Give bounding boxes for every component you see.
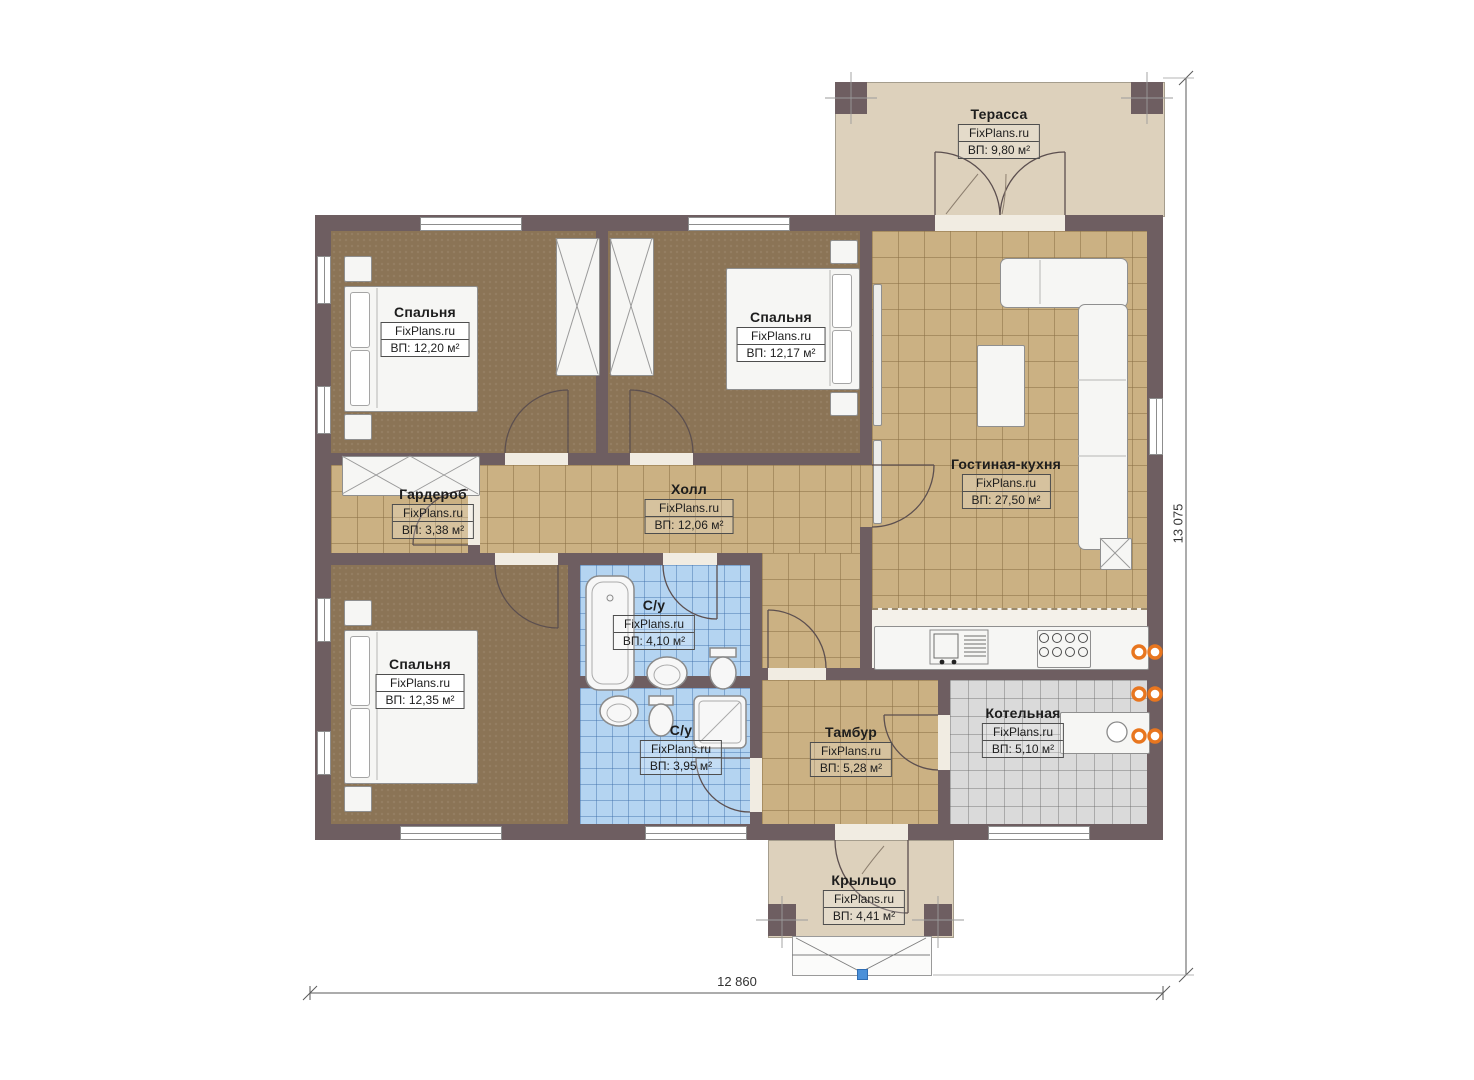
sofa-right bbox=[1078, 304, 1128, 550]
room-area: ВП: 9,80 м² bbox=[959, 142, 1039, 158]
porch-column-right bbox=[924, 904, 952, 936]
room-name: Котельная bbox=[982, 705, 1064, 721]
window-bedroom3-left-a bbox=[317, 598, 331, 642]
nightstand bbox=[830, 240, 858, 264]
terrace-column-right bbox=[1131, 82, 1163, 114]
label-bedroom3: Спальня FixPlans.ru ВП: 12,35 м² bbox=[376, 656, 465, 709]
door-opening-bathroom2 bbox=[750, 758, 762, 812]
label-terrace: Терасса FixPlans.ru ВП: 9,80 м² bbox=[958, 106, 1040, 159]
brand-watermark: FixPlans.ru bbox=[646, 500, 733, 517]
closet-bedroom1 bbox=[556, 238, 600, 376]
window-living-right bbox=[1149, 398, 1163, 455]
room-name: Спальня bbox=[381, 304, 470, 320]
tv-unit bbox=[873, 284, 882, 426]
coffee-table bbox=[977, 345, 1025, 427]
room-info-box: FixPlans.ru ВП: 5,10 м² bbox=[982, 723, 1064, 758]
pillow bbox=[832, 330, 852, 384]
window-boiler-bottom bbox=[988, 826, 1090, 840]
terrace-column-left bbox=[835, 82, 867, 114]
boiler-counter bbox=[1060, 712, 1150, 754]
wall-bedroom3-bath bbox=[568, 565, 580, 824]
window-bedroom1-left-a bbox=[317, 256, 331, 304]
room-area: ВП: 3,38 м² bbox=[393, 522, 473, 538]
room-name: Тамбур bbox=[810, 724, 892, 740]
wall-bath-divider bbox=[580, 676, 750, 688]
room-area: ВП: 12,06 м² bbox=[646, 517, 733, 533]
room-info-box: FixPlans.ru ВП: 12,35 м² bbox=[376, 674, 465, 709]
brand-watermark: FixPlans.ru bbox=[614, 616, 694, 633]
window-bedroom3-bottom bbox=[400, 826, 502, 840]
hall-living-gap-floor bbox=[860, 465, 872, 527]
entry-marker bbox=[857, 969, 868, 980]
porch-column-left bbox=[768, 904, 796, 936]
dimension-width: 12 860 bbox=[699, 974, 775, 989]
room-name: Гардероб bbox=[392, 486, 474, 502]
door-opening-bathroom1 bbox=[663, 553, 717, 565]
brand-watermark: FixPlans.ru bbox=[811, 743, 891, 760]
nightstand bbox=[344, 600, 372, 626]
room-area: ВП: 5,10 м² bbox=[983, 741, 1063, 757]
window-bathroom2-bottom bbox=[645, 826, 747, 840]
sofa-top bbox=[1000, 258, 1128, 308]
room-area: ВП: 12,20 м² bbox=[382, 340, 469, 356]
label-bathroom1: С/у FixPlans.ru ВП: 4,10 м² bbox=[613, 597, 695, 650]
room-info-box: FixPlans.ru ВП: 4,10 м² bbox=[613, 615, 695, 650]
door-opening-entrance bbox=[835, 824, 908, 840]
label-wardrobe: Гардероб FixPlans.ru ВП: 3,38 м² bbox=[392, 486, 474, 539]
pillow bbox=[350, 708, 370, 778]
window-bedroom1-top bbox=[420, 217, 522, 231]
brand-watermark: FixPlans.ru bbox=[377, 675, 464, 692]
brand-watermark: FixPlans.ru bbox=[824, 891, 904, 908]
stove bbox=[1037, 630, 1091, 668]
door-opening-bedroom1 bbox=[505, 453, 568, 465]
room-name: Гостиная-кухня bbox=[951, 456, 1061, 472]
room-info-box: FixPlans.ru ВП: 12,06 м² bbox=[645, 499, 734, 534]
label-bedroom2: Спальня FixPlans.ru ВП: 12,17 м² bbox=[737, 309, 826, 362]
door-opening-boiler bbox=[938, 715, 950, 770]
fridge-unit bbox=[1100, 538, 1132, 570]
room-area: ВП: 4,10 м² bbox=[614, 633, 694, 649]
pillow bbox=[350, 636, 370, 706]
room-area: ВП: 4,41 м² bbox=[824, 908, 904, 924]
wall-living-divider-lower bbox=[860, 527, 872, 680]
nightstand bbox=[344, 256, 372, 282]
room-name: С/у bbox=[640, 722, 722, 738]
room-info-box: FixPlans.ru ВП: 27,50 м² bbox=[962, 474, 1051, 509]
label-living-kitchen: Гостиная-кухня FixPlans.ru ВП: 27,50 м² bbox=[951, 456, 1061, 509]
console-unit bbox=[873, 440, 882, 524]
room-info-box: FixPlans.ru ВП: 5,28 м² bbox=[810, 742, 892, 777]
door-opening-bedroom2 bbox=[630, 453, 693, 465]
room-area: ВП: 27,50 м² bbox=[963, 492, 1050, 508]
pillow bbox=[832, 274, 852, 328]
room-area: ВП: 5,28 м² bbox=[811, 760, 891, 776]
room-name: Терасса bbox=[958, 106, 1040, 122]
window-bedroom2-top bbox=[688, 217, 790, 231]
label-hall: Холл FixPlans.ru ВП: 12,06 м² bbox=[645, 481, 734, 534]
door-opening-bedroom3 bbox=[495, 553, 558, 565]
pillow bbox=[350, 292, 370, 348]
window-bedroom3-left-b bbox=[317, 731, 331, 775]
door-opening-vestibule bbox=[768, 668, 826, 680]
brand-watermark: FixPlans.ru bbox=[963, 475, 1050, 492]
room-area: ВП: 12,35 м² bbox=[377, 692, 464, 708]
room-info-box: FixPlans.ru ВП: 4,41 м² bbox=[823, 890, 905, 925]
room-area: ВП: 3,95 м² bbox=[641, 758, 721, 774]
label-boiler: Котельная FixPlans.ru ВП: 5,10 м² bbox=[982, 705, 1064, 758]
brand-watermark: FixPlans.ru bbox=[738, 328, 825, 345]
brand-watermark: FixPlans.ru bbox=[959, 125, 1039, 142]
room-name: Крыльцо bbox=[823, 872, 905, 888]
room-name: Холл bbox=[645, 481, 734, 497]
room-name: Спальня bbox=[737, 309, 826, 325]
pillow bbox=[350, 350, 370, 406]
brand-watermark: FixPlans.ru bbox=[393, 505, 473, 522]
room-info-box: FixPlans.ru ВП: 12,17 м² bbox=[737, 327, 826, 362]
wall-living-divider-upper bbox=[860, 231, 872, 465]
room-name: С/у bbox=[613, 597, 695, 613]
nightstand bbox=[344, 786, 372, 812]
floor-plan-canvas: Терасса FixPlans.ru ВП: 9,80 м² Спальня … bbox=[0, 0, 1474, 1080]
room-info-box: FixPlans.ru ВП: 3,95 м² bbox=[640, 740, 722, 775]
door-opening-terrace bbox=[935, 215, 1065, 231]
closet-bedroom2 bbox=[610, 238, 654, 376]
corridor-floor bbox=[762, 553, 860, 668]
label-vestibule: Тамбур FixPlans.ru ВП: 5,28 м² bbox=[810, 724, 892, 777]
nightstand bbox=[344, 414, 372, 440]
label-bathroom2: С/у FixPlans.ru ВП: 3,95 м² bbox=[640, 722, 722, 775]
nightstand bbox=[830, 392, 858, 416]
brand-watermark: FixPlans.ru bbox=[983, 724, 1063, 741]
room-area: ВП: 12,17 м² bbox=[738, 345, 825, 361]
room-info-box: FixPlans.ru ВП: 3,38 м² bbox=[392, 504, 474, 539]
dimension-height: 13 075 bbox=[1171, 489, 1186, 559]
brand-watermark: FixPlans.ru bbox=[641, 741, 721, 758]
brand-watermark: FixPlans.ru bbox=[382, 323, 469, 340]
room-info-box: FixPlans.ru ВП: 9,80 м² bbox=[958, 124, 1040, 159]
kitchen-counter bbox=[874, 626, 1149, 670]
label-porch: Крыльцо FixPlans.ru ВП: 4,41 м² bbox=[823, 872, 905, 925]
room-info-box: FixPlans.ru ВП: 12,20 м² bbox=[381, 322, 470, 357]
window-bedroom1-left-b bbox=[317, 386, 331, 434]
label-bedroom1: Спальня FixPlans.ru ВП: 12,20 м² bbox=[381, 304, 470, 357]
room-name: Спальня bbox=[376, 656, 465, 672]
